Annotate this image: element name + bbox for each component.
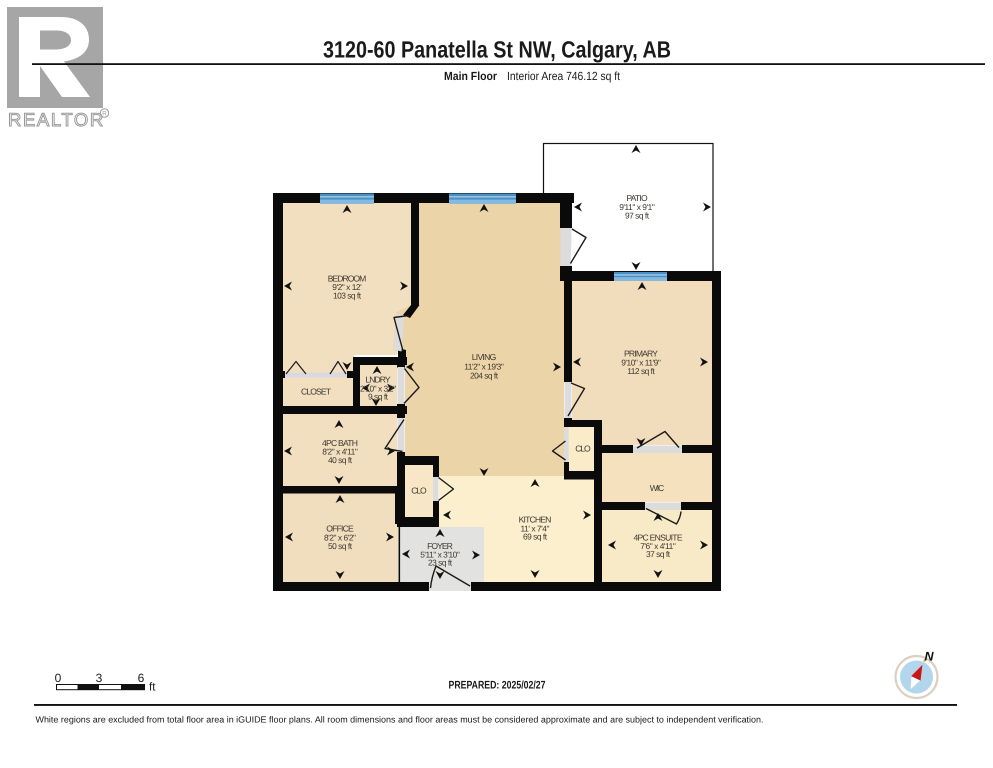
svg-text:ft: ft (149, 682, 156, 694)
svg-text:23 sq ft: 23 sq ft (428, 558, 453, 568)
svg-text:CLOSET: CLOSET (301, 387, 332, 397)
svg-text:6: 6 (138, 671, 145, 685)
svg-text:REALTOR: REALTOR (8, 109, 105, 130)
svg-text:Interior Area 746.12 sq ft: Interior Area 746.12 sq ft (507, 69, 621, 83)
svg-text:103 sq ft: 103 sq ft (333, 291, 362, 301)
svg-text:97 sq ft: 97 sq ft (625, 211, 650, 221)
svg-text:R: R (102, 111, 107, 118)
svg-text:3120-60 Panatella St NW, Calga: 3120-60 Panatella St NW, Calgary, AB (323, 37, 671, 63)
svg-text:50 sq ft: 50 sq ft (328, 541, 353, 551)
svg-text:N: N (925, 650, 935, 664)
svg-text:WIC: WIC (650, 483, 665, 493)
svg-text:White regions are excluded fro: White regions are excluded from total fl… (36, 715, 764, 725)
svg-text:3: 3 (96, 671, 103, 685)
svg-text:69 sq ft: 69 sq ft (523, 531, 548, 541)
svg-text:9 sq ft: 9 sq ft (368, 392, 389, 402)
svg-text:40 sq ft: 40 sq ft (328, 455, 353, 465)
svg-text:37 sq ft: 37 sq ft (646, 549, 671, 559)
svg-text:204 sq ft: 204 sq ft (470, 371, 499, 381)
svg-text:CLO: CLO (411, 486, 427, 496)
svg-text:Main Floor: Main Floor (444, 69, 497, 83)
svg-text:LIVING: LIVING (472, 352, 497, 362)
svg-text:0: 0 (55, 671, 62, 685)
svg-text:PREPARED: 2025/02/27: PREPARED: 2025/02/27 (449, 680, 546, 692)
svg-text:CLO: CLO (575, 444, 591, 454)
svg-text:112 sq ft: 112 sq ft (627, 366, 655, 376)
